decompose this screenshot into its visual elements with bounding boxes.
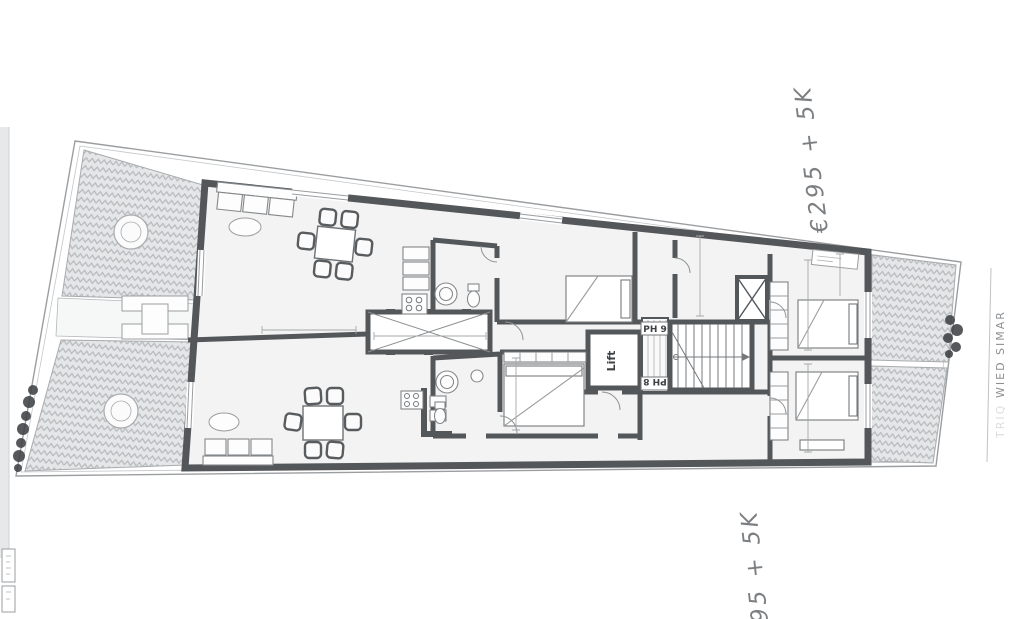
street-label: WIED SIMAR TRIQ (994, 310, 1007, 439)
sofa-icon (203, 439, 273, 465)
round-table-icon (114, 215, 148, 249)
hob-icon (402, 294, 427, 314)
bed-icon (798, 300, 858, 348)
title-block (2, 549, 15, 612)
staircase (670, 322, 752, 390)
garden-right (870, 255, 956, 463)
service-shaft (368, 309, 490, 355)
coffee-table-icon (229, 218, 261, 236)
annotation-price-top: €295 + 5K (790, 83, 834, 235)
kitchen-upper (402, 247, 429, 314)
bed-icon (566, 276, 632, 322)
round-table-icon (104, 394, 138, 428)
scan-edge-strip (0, 127, 9, 558)
unit-label-ph9: PH 9 (643, 325, 667, 335)
street-name-text: WIED SIMAR (994, 310, 1007, 398)
coffee-table-icon (209, 413, 239, 431)
floor-plan-canvas: Lift PH 9 PH 8 (0, 0, 1024, 619)
unit-label-ph8: PH 8 (643, 376, 667, 386)
sink-icon (471, 370, 483, 382)
secondary-lift-shaft (737, 277, 767, 321)
street-prefix-text: TRIQ (994, 404, 1007, 439)
hob-icon (401, 391, 423, 409)
scanned-floor-plan-page: Lift PH 9 PH 8 (0, 0, 1024, 619)
lift-shaft: Lift (588, 332, 640, 388)
tree-icon (943, 315, 963, 358)
toilet-icon (468, 284, 480, 307)
lift-label: Lift (605, 351, 618, 372)
annotation-price-bottom: 95 + 5K (736, 508, 774, 619)
toilet-icon (435, 402, 446, 424)
terrace-left (25, 150, 203, 471)
corridor: PH 9 PH 8 (641, 318, 669, 392)
